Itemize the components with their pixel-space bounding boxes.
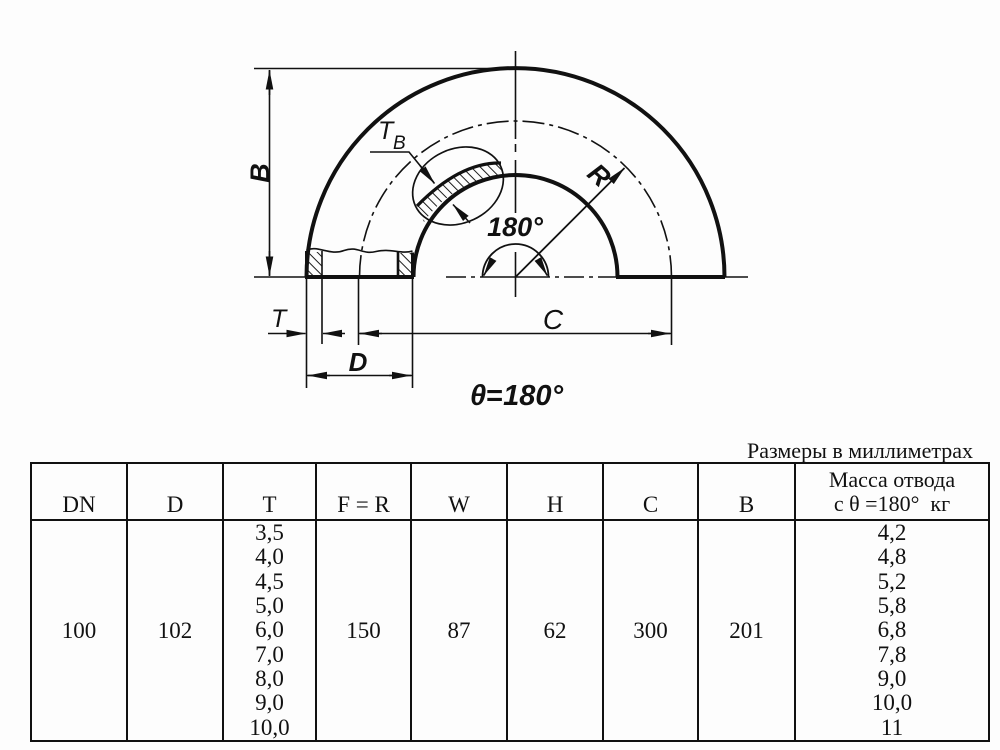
svg-text:T: T [271,305,288,333]
svg-text:B: B [245,163,275,183]
svg-text:C: C [543,304,564,335]
svg-text:D: D [349,347,368,377]
svg-text:R: R [582,158,617,194]
svg-text:180°: 180° [487,212,543,242]
svg-text:θ=180°: θ=180° [470,380,563,412]
svg-text:B: B [393,133,406,154]
